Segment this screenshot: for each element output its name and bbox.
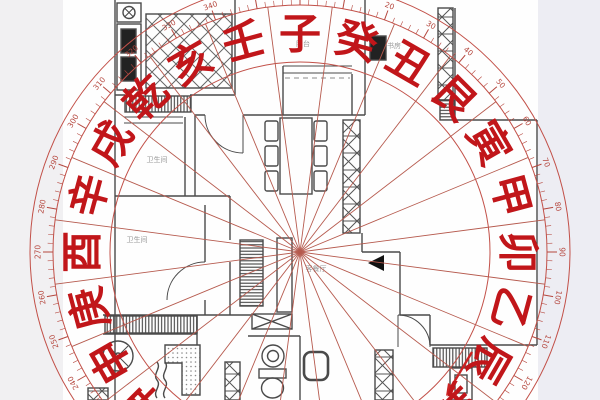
room-label-bathroom_lower: 卫生间 xyxy=(127,235,148,244)
scene-svg: 阳台书房卫生间卫生间客餐厅 01020304050607080901001101… xyxy=(0,0,600,400)
column-hatch-bottomright xyxy=(375,350,393,400)
ladder-stripes xyxy=(240,240,263,306)
radiator-left xyxy=(105,316,197,333)
mountain-label: 卯 xyxy=(494,231,543,273)
degree-label: 80 xyxy=(553,201,564,212)
luopan-floorplan-diagram: 阳台书房卫生间卫生间客餐厅 01020304050607080901001101… xyxy=(0,0,600,400)
mountain-label: 酉 xyxy=(58,231,107,273)
column-hatch-bottomcenter xyxy=(225,362,240,400)
degree-label: 90 xyxy=(558,247,567,257)
room-label-bathroom_upper: 卫生间 xyxy=(147,155,168,164)
degree-label: 270 xyxy=(34,245,43,260)
room-label-living_dining: 客餐厅 xyxy=(306,264,327,273)
mountain-label: 子 xyxy=(279,10,321,59)
